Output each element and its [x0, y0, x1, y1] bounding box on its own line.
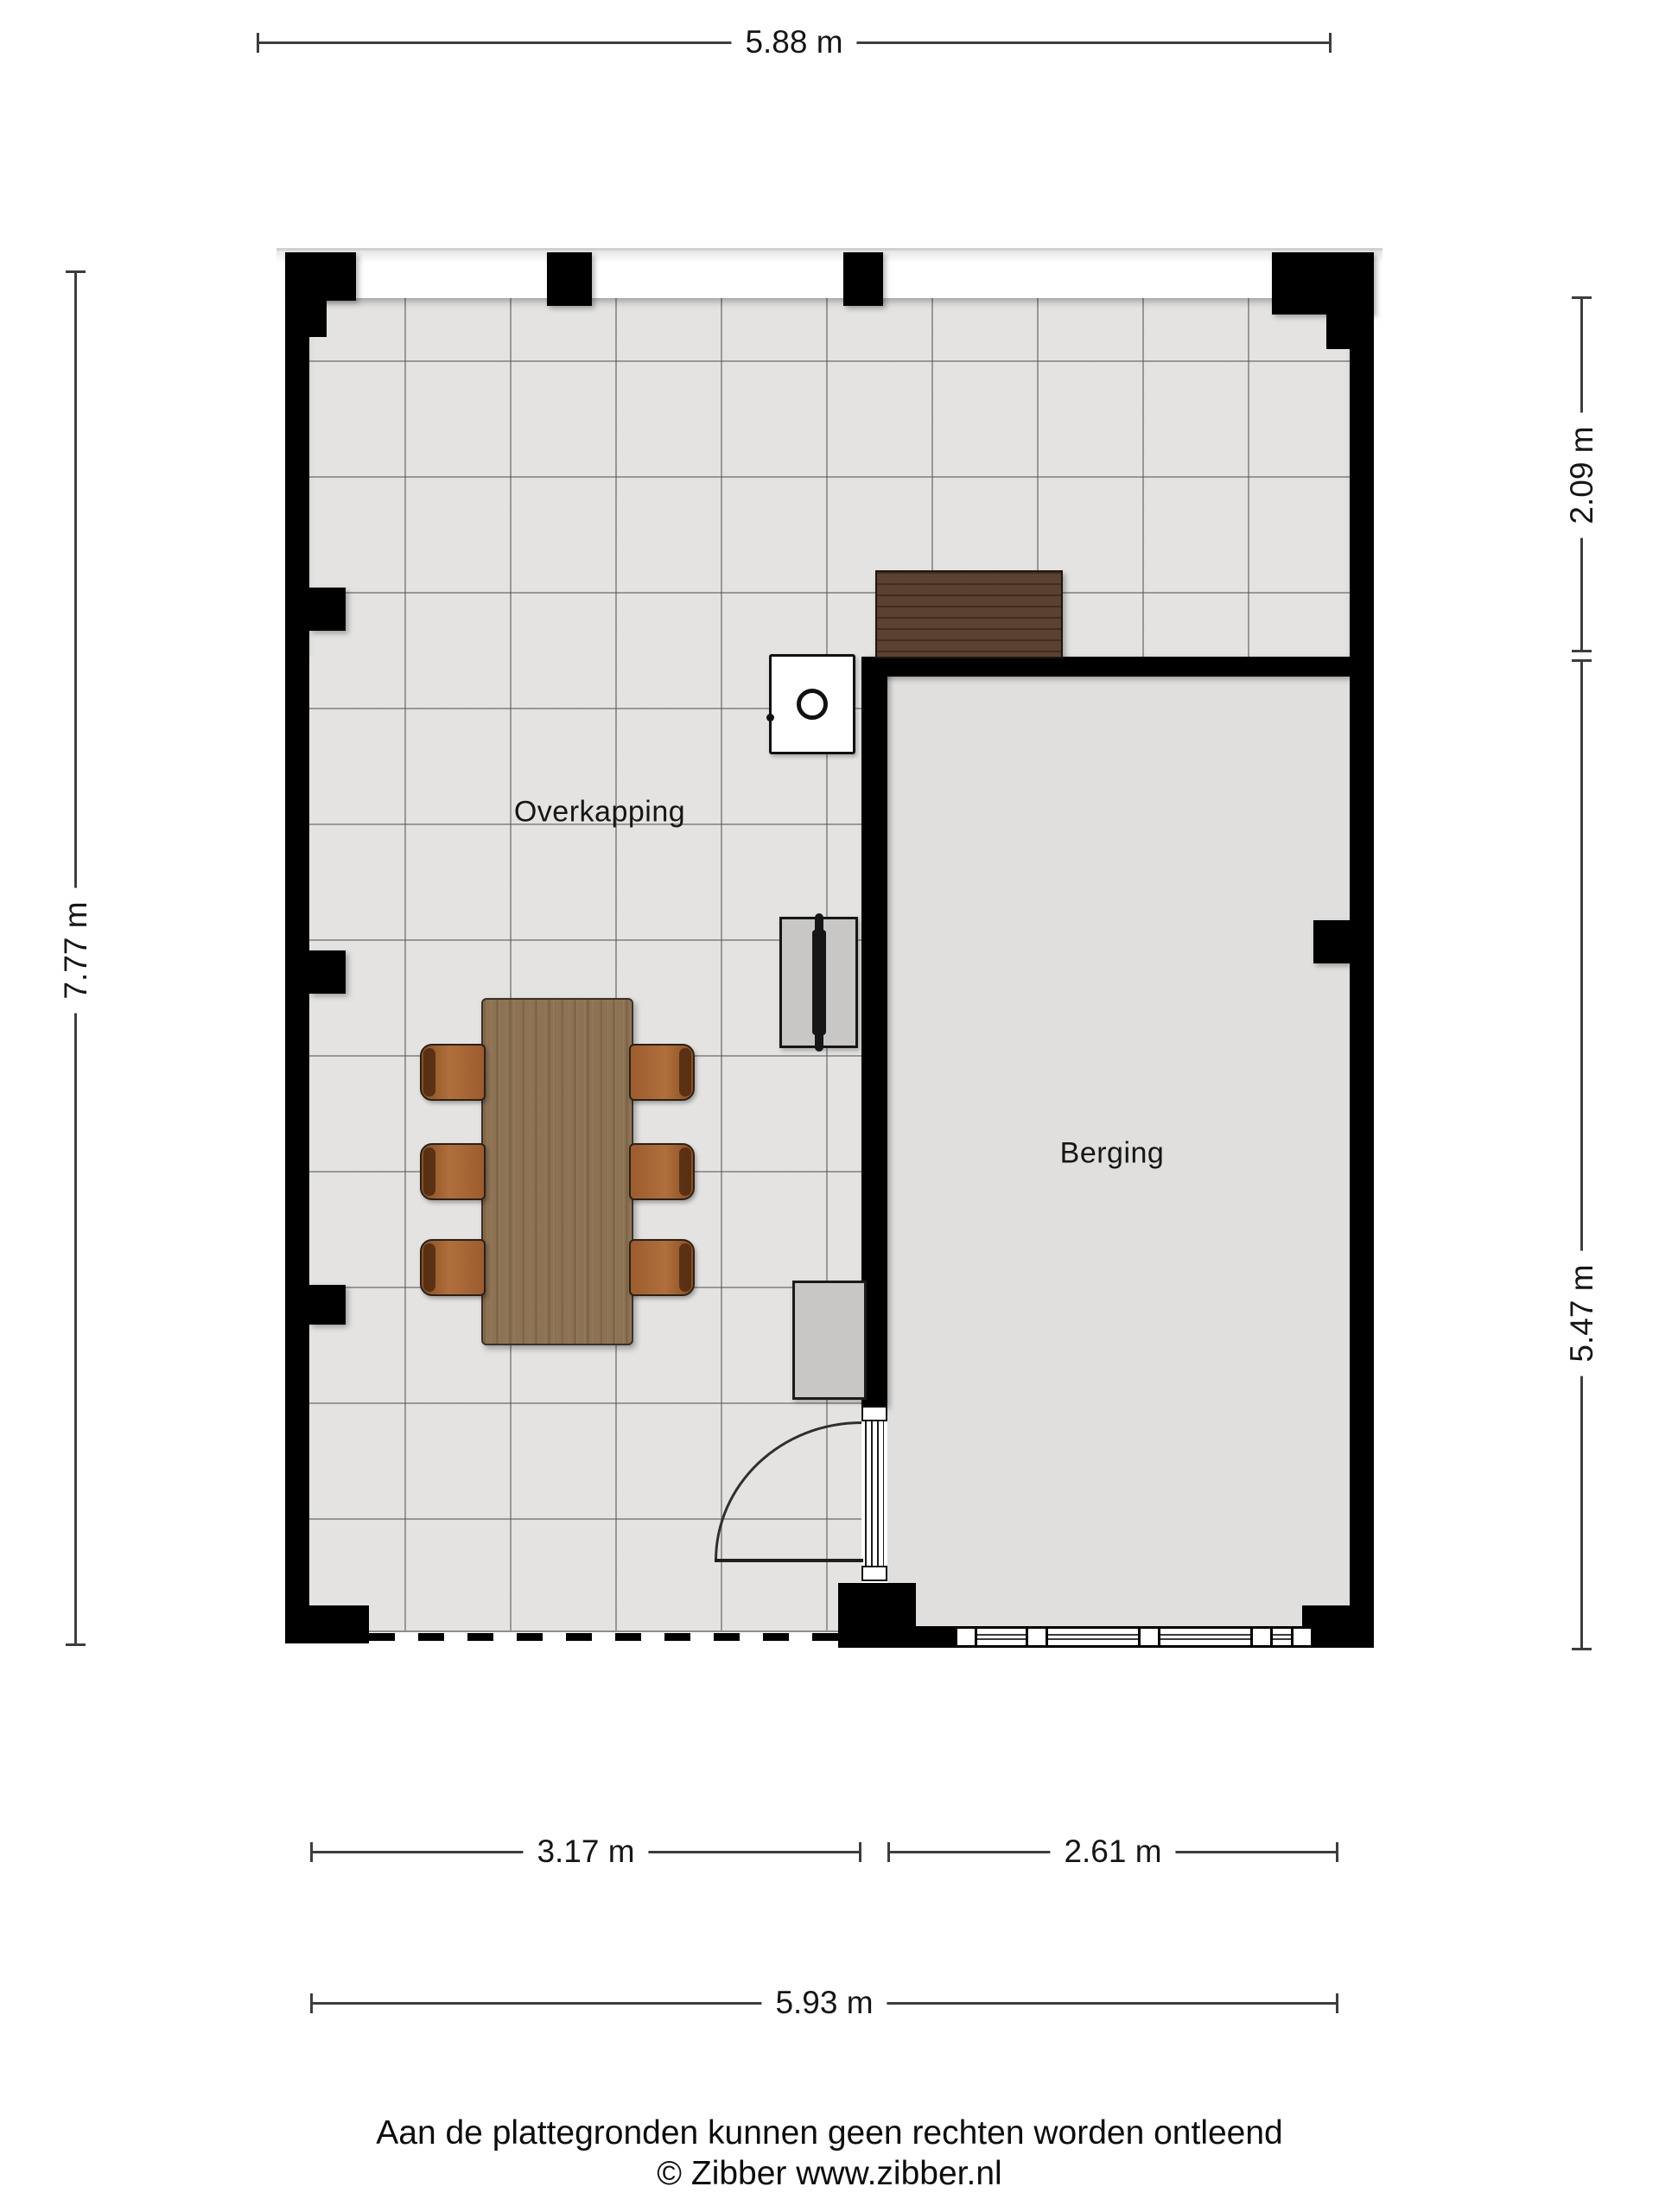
dim-label-top: 5.88 m [731, 22, 856, 62]
chair-6 [629, 1239, 695, 1296]
dining-table [481, 998, 633, 1345]
floor-overkapping-top [309, 298, 1350, 657]
footer-copyright: © Zibber www.zibber.nl [0, 2155, 1659, 2193]
window-post [1291, 1626, 1313, 1648]
dim-label-right-top: 2.09 m [1562, 412, 1602, 537]
window-band [955, 1626, 1313, 1648]
wall-right [1350, 252, 1374, 1648]
pillar-left-3 [309, 1285, 346, 1325]
window-mullion [1138, 1626, 1160, 1648]
pillar-door-foot [838, 1626, 955, 1648]
pillar-top-3 [843, 252, 883, 306]
floorplan: Overkapping Berging [285, 252, 1374, 1648]
footer-disclaimer: Aan de plattegronden kunnen geen rechten… [0, 2114, 1659, 2152]
door-frame-top [861, 1406, 887, 1421]
tv-screen [779, 917, 858, 1048]
dim-line-right-bottom [1580, 659, 1583, 1650]
wall-berging-top [861, 657, 1350, 677]
chair-4 [629, 1044, 695, 1101]
window-post [955, 1626, 977, 1648]
storage-box [792, 1281, 867, 1400]
pillar-right-1 [1313, 920, 1350, 963]
pillar-left-2 [309, 950, 346, 994]
pillar-left-1 [309, 588, 346, 631]
window-mullion [1026, 1626, 1048, 1648]
dim-label-bottom-right: 2.61 m [1050, 1832, 1175, 1872]
pillar-bottom-left [285, 1605, 369, 1643]
dim-label-right-bottom: 5.47 m [1562, 1250, 1602, 1376]
chair-3 [420, 1239, 486, 1296]
roof-edge-shadow [276, 251, 1382, 263]
chair-5 [629, 1143, 695, 1200]
room-label-berging: Berging [1060, 1137, 1165, 1171]
room-label-overkapping: Overkapping [514, 796, 685, 829]
dim-label-bottom-left: 3.17 m [523, 1832, 648, 1872]
chair-1 [420, 1044, 486, 1101]
fire-table [769, 654, 855, 754]
dim-label-bottom-total: 5.93 m [761, 1983, 887, 2023]
open-edge-dashed-line [369, 1633, 840, 1641]
pillar-top-2 [547, 252, 592, 306]
dim-label-left: 7.77 m [56, 887, 96, 1013]
door-frame-bottom [861, 1566, 887, 1581]
door-leaf-closed [865, 1421, 884, 1566]
window-mullion [1250, 1626, 1273, 1648]
floorplan-page: Overkapping Berging 5.88 m 7.77 m 2.09 m… [0, 0, 1659, 2212]
pillar-top-left-leg [285, 252, 327, 337]
sideboard [875, 570, 1063, 658]
door-leaf-open [715, 1559, 863, 1562]
wall-left [285, 252, 309, 1643]
chair-2 [420, 1143, 486, 1200]
